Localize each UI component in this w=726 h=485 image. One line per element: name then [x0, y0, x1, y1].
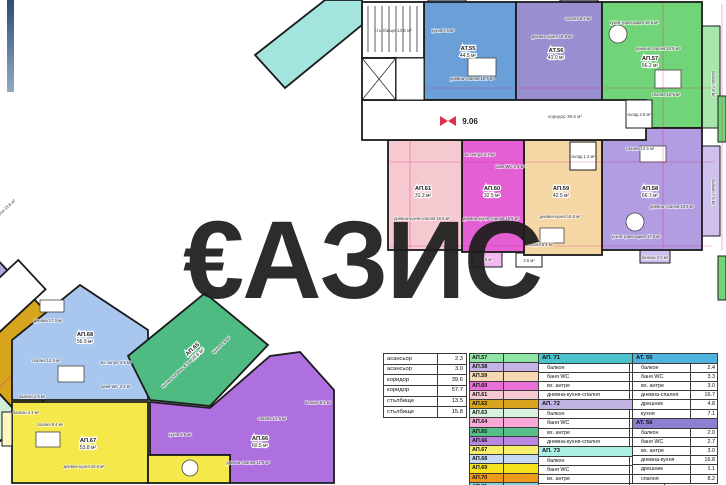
svg-text:спалня 10.5 м²: спалня 10.5 м² [626, 146, 655, 151]
dining-table-icon [182, 460, 198, 476]
svg-text:кухня-трапезария 16.5 м²: кухня-трапезария 16.5 м² [609, 20, 659, 25]
table-row: стълбище15.8 [384, 407, 467, 418]
detail-row: баня WC2.7 [633, 437, 718, 446]
apartment-label: АП.60 [484, 186, 500, 192]
bed-icon [58, 366, 84, 382]
detail-row: дрешник4.8 [633, 400, 718, 409]
table-row: асансьор3.0 [384, 364, 467, 375]
detail-row: баня WC3.3 [633, 372, 718, 381]
bed-icon [540, 228, 564, 243]
balcony-ap57 [702, 26, 720, 128]
sofa-icon [40, 300, 64, 312]
dining-table-icon [609, 25, 627, 43]
detail-row: вх. антре3.0 [633, 382, 718, 391]
svg-text:балкон 1.9 м²: балкон 1.9 м² [19, 394, 46, 399]
left-edge-stripe [7, 0, 14, 92]
svg-text:балкон 2.0 м²: балкон 2.0 м² [642, 255, 669, 260]
svg-text:спалня 10.5 м²: спалня 10.5 м² [652, 92, 681, 97]
legend-common-areas-table: асансьор2.3асансьор3.0коридор39.6коридор… [383, 353, 467, 418]
svg-text:дневна 17.0 м²: дневна 17.0 м² [34, 318, 63, 323]
legend-at-details-table: АТ. 55балкон2.4баня WC3.3вх. антре3.0дне… [632, 353, 718, 484]
stairwell-label: стълбище 13.5 м² [374, 28, 412, 33]
detail-row: спалня8.2 [633, 474, 718, 483]
apartment-area: 56.9 м² [77, 339, 94, 345]
corridor-main [362, 100, 646, 140]
apartment-label: АП.61 [415, 186, 432, 192]
apartment-label: АТ.56 [549, 48, 565, 54]
svg-text:баня WC 3.4 м²: баня WC 3.4 м² [101, 384, 131, 389]
svg-text:кухня-трапезария 17.0 м²: кухня-трапезария 17.0 м² [611, 234, 661, 239]
apartment-area: 42.5 м² [553, 193, 570, 199]
apartment-area: 66.2 м² [642, 63, 659, 69]
svg-text:баня WC 2.6 м²: баня WC 2.6 м² [495, 164, 525, 169]
svg-text:вх. антре 4.5 м²: вх. антре 4.5 м² [101, 360, 132, 365]
floorplan-page: АП.71 31.5 м² АП.72 31.5 м² АП.70 31.5 м… [0, 0, 726, 485]
apartment-area: 53.8 м² [80, 445, 97, 451]
detail-row: балкон2.0 [633, 428, 718, 437]
dining-table-icon [626, 213, 644, 231]
svg-text:спалня 9.4 м²: спалня 9.4 м² [37, 422, 64, 427]
apartment-ap-73 [255, 0, 362, 88]
svg-text:дневна-кухня 16.5 м²: дневна-кухня 16.5 м² [540, 214, 581, 219]
svg-text:дневна-спалня 10.5 м²: дневна-спалня 10.5 м² [636, 46, 680, 51]
apartment-area: 66.7 м² [642, 193, 659, 199]
watermark: €АЗИС [183, 199, 541, 322]
table-row: асансьор2.3 [384, 354, 467, 365]
svg-text:дневна-спалня 16.7 м²: дневна-спалня 16.7 м² [450, 76, 494, 81]
bed-icon [36, 432, 60, 447]
svg-text:кухня 5.6 м²: кухня 5.6 м² [168, 432, 192, 437]
bed-icon [655, 70, 681, 88]
balcony-ap58 [702, 146, 720, 236]
detail-row: дневна-кухня16.8 [633, 456, 718, 465]
room-label: дневна-кухня 15.6 м² [0, 198, 17, 230]
apartment-label: АП.67 [80, 438, 96, 444]
svg-text:склад 2.8 м²: склад 2.8 м² [627, 112, 651, 117]
svg-text:кухня 7.1 м²: кухня 7.1 м² [431, 28, 455, 33]
corridor-label: коридор 39.6 м² [548, 114, 582, 119]
detail-row: дрешник1.1 [633, 465, 718, 474]
svg-text:спалня 8.2 м²: спалня 8.2 м² [565, 16, 592, 21]
detail-section-header: АТ. 55 [633, 354, 718, 364]
apartment-label: АП.66 [252, 436, 269, 442]
apartment-label: АП.68 [77, 332, 94, 338]
apartment-label: АП.57 [642, 56, 658, 62]
svg-text:вх. антре 3.2 м²: вх. антре 3.2 м² [465, 152, 496, 157]
apartment-label: АТ.55 [461, 46, 477, 52]
table-row: коридор57.7 [384, 385, 467, 396]
svg-text:балкон 2.4 м²: балкон 2.4 м² [13, 410, 40, 415]
svg-text:балкон 7.0 м²: балкон 7.0 м² [711, 179, 716, 206]
svg-text:балкон 5.2 м²: балкон 5.2 м² [305, 400, 332, 405]
apartment-label: АП.59 [553, 186, 570, 192]
svg-text:дневна-кухня 20.6 м²: дневна-кухня 20.6 м² [64, 464, 105, 469]
svg-text:склад 1.2 м²: склад 1.2 м² [571, 154, 595, 159]
table-row: стълбище13.5 [384, 396, 467, 407]
table-row: коридор39.6 [384, 375, 467, 386]
level-marker-value: 9.06 [462, 117, 478, 126]
balcony-ap67 [2, 412, 12, 446]
detail-section-header: АТ. 56 [633, 418, 718, 428]
apartment-area: 44.5 м² [460, 53, 477, 59]
apartment-area: 60.5 м² [252, 443, 269, 449]
svg-text:дневна-кухня 16.8 м²: дневна-кухня 16.8 м² [532, 34, 573, 39]
svg-text:спалня 12.6 м²: спалня 12.6 м² [258, 416, 287, 421]
detail-row: вх. антре3.0 [633, 446, 718, 455]
svg-text:дневна-спалня 10.5 м²: дневна-спалня 10.5 м² [650, 204, 694, 209]
apartment-label: АП.58 [642, 186, 659, 192]
detail-row: балкон2.4 [633, 363, 718, 372]
svg-text:дневна-спалня 11.6 м²: дневна-спалня 11.6 м² [226, 460, 270, 465]
apartment-area: 41.0 м² [548, 55, 565, 61]
bed-icon [468, 58, 496, 76]
svg-text:балкон 7.8 м²: балкон 7.8 м² [711, 71, 716, 98]
svg-text:спалня 12.4 м²: спалня 12.4 м² [32, 358, 61, 363]
detail-row: дневна-спалня16.7 [633, 391, 718, 400]
detail-row: кухня7.1 [633, 409, 718, 418]
